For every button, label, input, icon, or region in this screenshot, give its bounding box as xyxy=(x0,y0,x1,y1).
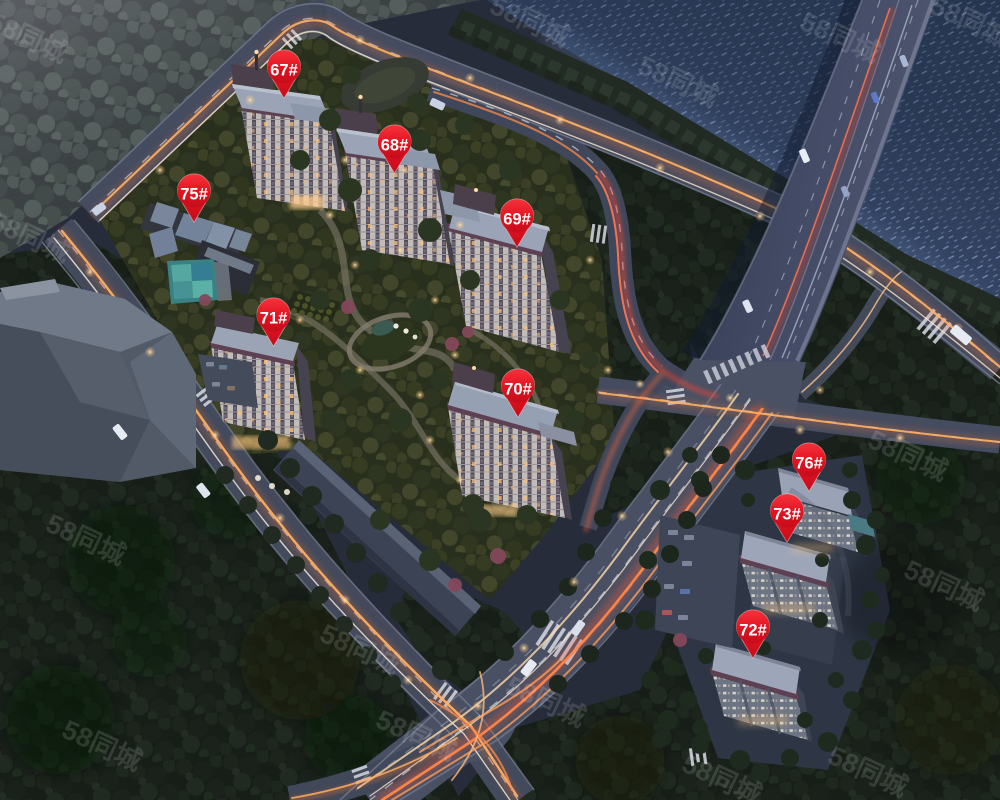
svg-text:71#: 71# xyxy=(260,309,288,327)
svg-text:67#: 67# xyxy=(270,61,298,79)
svg-text:76#: 76# xyxy=(795,454,823,472)
svg-text:69#: 69# xyxy=(503,210,531,228)
svg-text:68#: 68# xyxy=(381,136,409,154)
svg-text:70#: 70# xyxy=(504,380,532,398)
svg-text:73#: 73# xyxy=(773,505,801,523)
svg-text:75#: 75# xyxy=(180,185,208,203)
svg-text:72#: 72# xyxy=(739,621,767,639)
